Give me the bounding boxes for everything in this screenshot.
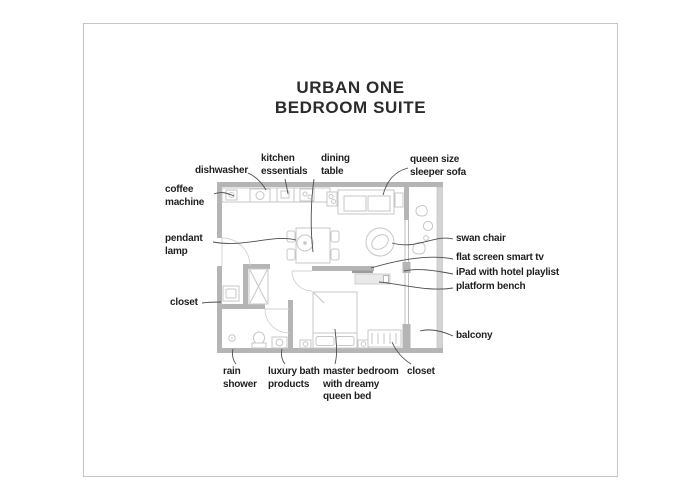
dining-chair xyxy=(331,231,339,242)
flat-screen-tv xyxy=(352,271,373,274)
pendant-lamp-center xyxy=(303,241,307,245)
toilet-bowl xyxy=(254,332,265,344)
leader-swan-chair xyxy=(392,238,453,245)
balcony-plant-small xyxy=(424,236,429,241)
window-pier-bottom xyxy=(403,324,411,348)
label-ipad-hotel-playlist: iPad with hotel playlist xyxy=(456,267,559,280)
label-dishwasher: dishwasher xyxy=(195,165,248,178)
dining-chair xyxy=(287,231,295,242)
bed-pillow xyxy=(316,337,334,346)
wall-left-upper xyxy=(217,182,222,238)
window-wall-solid xyxy=(404,187,409,220)
label-rain-shower: rain shower xyxy=(223,366,257,391)
label-kitchen-essentials: kitchen essentials xyxy=(261,153,307,178)
side-table xyxy=(327,192,337,206)
label-master-bedroom: master bedroom with dreamy queen bed xyxy=(323,366,399,404)
dining-chair xyxy=(287,249,295,260)
label-flat-screen-smart-tv: flat screen smart tv xyxy=(456,252,544,265)
bedroom-door-arc xyxy=(292,271,312,291)
dining-area xyxy=(287,228,339,263)
bedroom-north-wall xyxy=(312,266,374,271)
bath-east-wall xyxy=(288,300,293,348)
closet-nook-wall-v xyxy=(243,264,248,306)
balcony-plant xyxy=(423,221,432,230)
window-pier-mid xyxy=(403,262,411,273)
console-table xyxy=(395,193,403,207)
leader-balcony xyxy=(420,330,453,336)
floor-plan-drawing xyxy=(0,0,700,500)
closet-nook-wall-h xyxy=(248,264,270,269)
label-balcony: balcony xyxy=(456,330,492,343)
balcony-railing xyxy=(437,187,443,348)
label-coffee-machine: coffee machine xyxy=(165,184,204,209)
balcony-plant xyxy=(416,206,427,217)
kitchen xyxy=(222,188,330,202)
balcony xyxy=(413,206,433,255)
wall-bottom xyxy=(217,348,443,353)
wall-left-lower xyxy=(217,266,222,353)
wall-top xyxy=(217,182,443,187)
label-closet-bottom: closet xyxy=(407,366,435,379)
dishwasher xyxy=(250,189,270,202)
rain-shower-center xyxy=(231,337,233,339)
label-luxury-bath-products: luxury bath products xyxy=(268,366,320,391)
swan-chair xyxy=(366,228,394,256)
label-closet-left: closet xyxy=(170,297,198,310)
label-pendant-lamp: pendant lamp xyxy=(165,233,203,258)
toilet-tank xyxy=(252,343,266,348)
label-platform-bench: platform bench xyxy=(456,281,525,294)
leader-pendant-lamp xyxy=(213,238,296,243)
bath-divider-wall xyxy=(222,304,265,309)
leader-ipad xyxy=(404,270,453,274)
bedroom xyxy=(300,292,401,348)
ipad xyxy=(384,276,389,283)
floor-plan-page: URBAN ONE BEDROOM SUITE xyxy=(0,0,700,500)
dining-chair xyxy=(331,249,339,260)
label-queen-sleeper-sofa: queen size sleeper sofa xyxy=(410,154,466,179)
laundry-closet-unit xyxy=(223,286,239,301)
label-dining-table: dining table xyxy=(321,153,350,178)
bathroom-door-arc xyxy=(265,309,289,333)
label-swan-chair: swan chair xyxy=(456,233,506,246)
kitchen-sink-unit xyxy=(277,188,294,202)
bed-pillow xyxy=(336,337,354,346)
